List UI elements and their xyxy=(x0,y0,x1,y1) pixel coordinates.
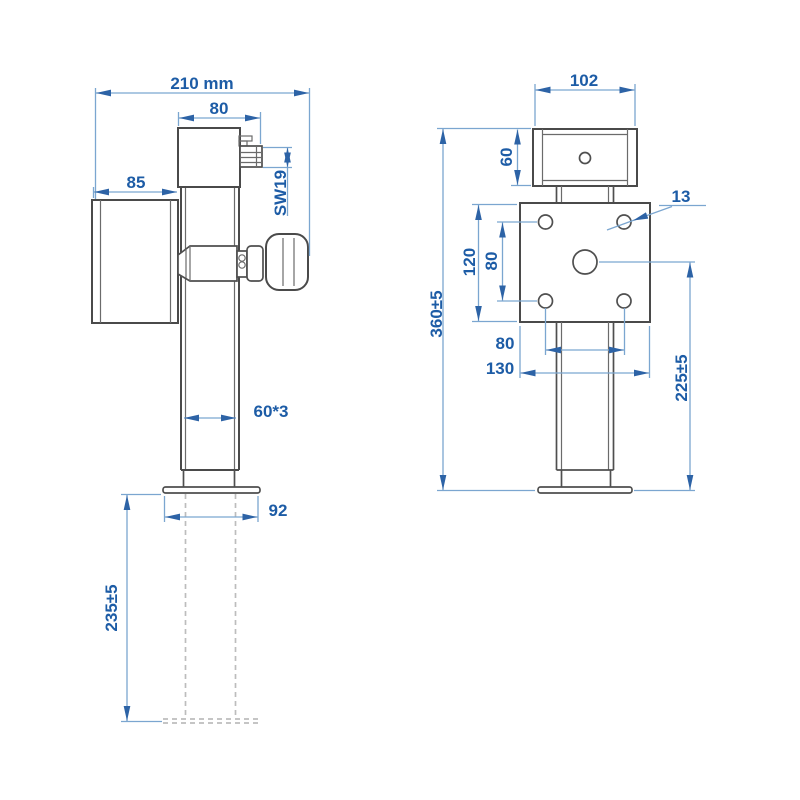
dim-label-tube-size: 60*3 xyxy=(254,402,289,421)
gearbox-front xyxy=(533,129,637,186)
hex-shaft xyxy=(240,146,262,167)
dim-total-height: 360±5 xyxy=(427,129,535,491)
outer-tube-side xyxy=(181,187,239,470)
front-view: 102 60 360±5 120 80 13 xyxy=(427,71,706,493)
outer-tube-front xyxy=(557,322,614,470)
dim-label-crank-hex: SW19 xyxy=(271,170,290,216)
technical-drawing-page: 210 mm 80 85 SW19 60*3 92 xyxy=(0,0,800,800)
dim-label-motor-length: 85 xyxy=(127,173,146,192)
dim-label-extension-stroke: 235±5 xyxy=(102,584,121,631)
dim-label-hole-spacing-vertical: 80 xyxy=(482,252,501,271)
dim-gearbox-width-front: 102 xyxy=(535,71,635,126)
dim-extension-stroke: 235±5 xyxy=(102,495,162,722)
dim-label-center-to-foot: 225±5 xyxy=(672,354,691,401)
dim-crank-hex: SW19 xyxy=(263,148,292,217)
dim-label-plate-height: 120 xyxy=(460,248,479,276)
dim-label-hole-diameter: 13 xyxy=(672,187,691,206)
dim-label-total-width: 210 mm xyxy=(170,74,233,93)
crank-knob xyxy=(266,234,308,290)
dim-motor-length: 85 xyxy=(94,173,178,198)
dim-label-gearbox-height: 60 xyxy=(497,148,516,167)
tube-neck-front xyxy=(557,186,614,203)
dim-label-foot-width: 92 xyxy=(269,501,288,520)
dim-label-hole-spacing-horizontal: 80 xyxy=(496,334,515,353)
inner-leg-side xyxy=(184,470,235,487)
side-view: 210 mm 80 85 SW19 60*3 92 xyxy=(92,74,310,723)
gearbox-side xyxy=(178,128,240,187)
inner-leg-front xyxy=(562,470,611,487)
dim-label-plate-width: 130 xyxy=(486,359,514,378)
dim-label-gearbox-width-side: 80 xyxy=(210,99,229,118)
extended-leg-hidden xyxy=(163,494,259,723)
dim-label-gearbox-width-front: 102 xyxy=(570,71,598,90)
dim-label-total-height: 360±5 xyxy=(427,290,446,337)
dim-foot-width: 92 xyxy=(165,496,288,522)
foot-plate-front xyxy=(538,487,632,493)
motor-housing xyxy=(92,200,178,323)
crank-hub xyxy=(178,246,263,281)
drawing-svg: 210 mm 80 85 SW19 60*3 92 xyxy=(0,0,800,800)
foot-plate-side xyxy=(163,487,260,493)
dim-gearbox-height: 60 xyxy=(497,130,531,186)
dim-tube-size: 60*3 xyxy=(184,402,288,421)
